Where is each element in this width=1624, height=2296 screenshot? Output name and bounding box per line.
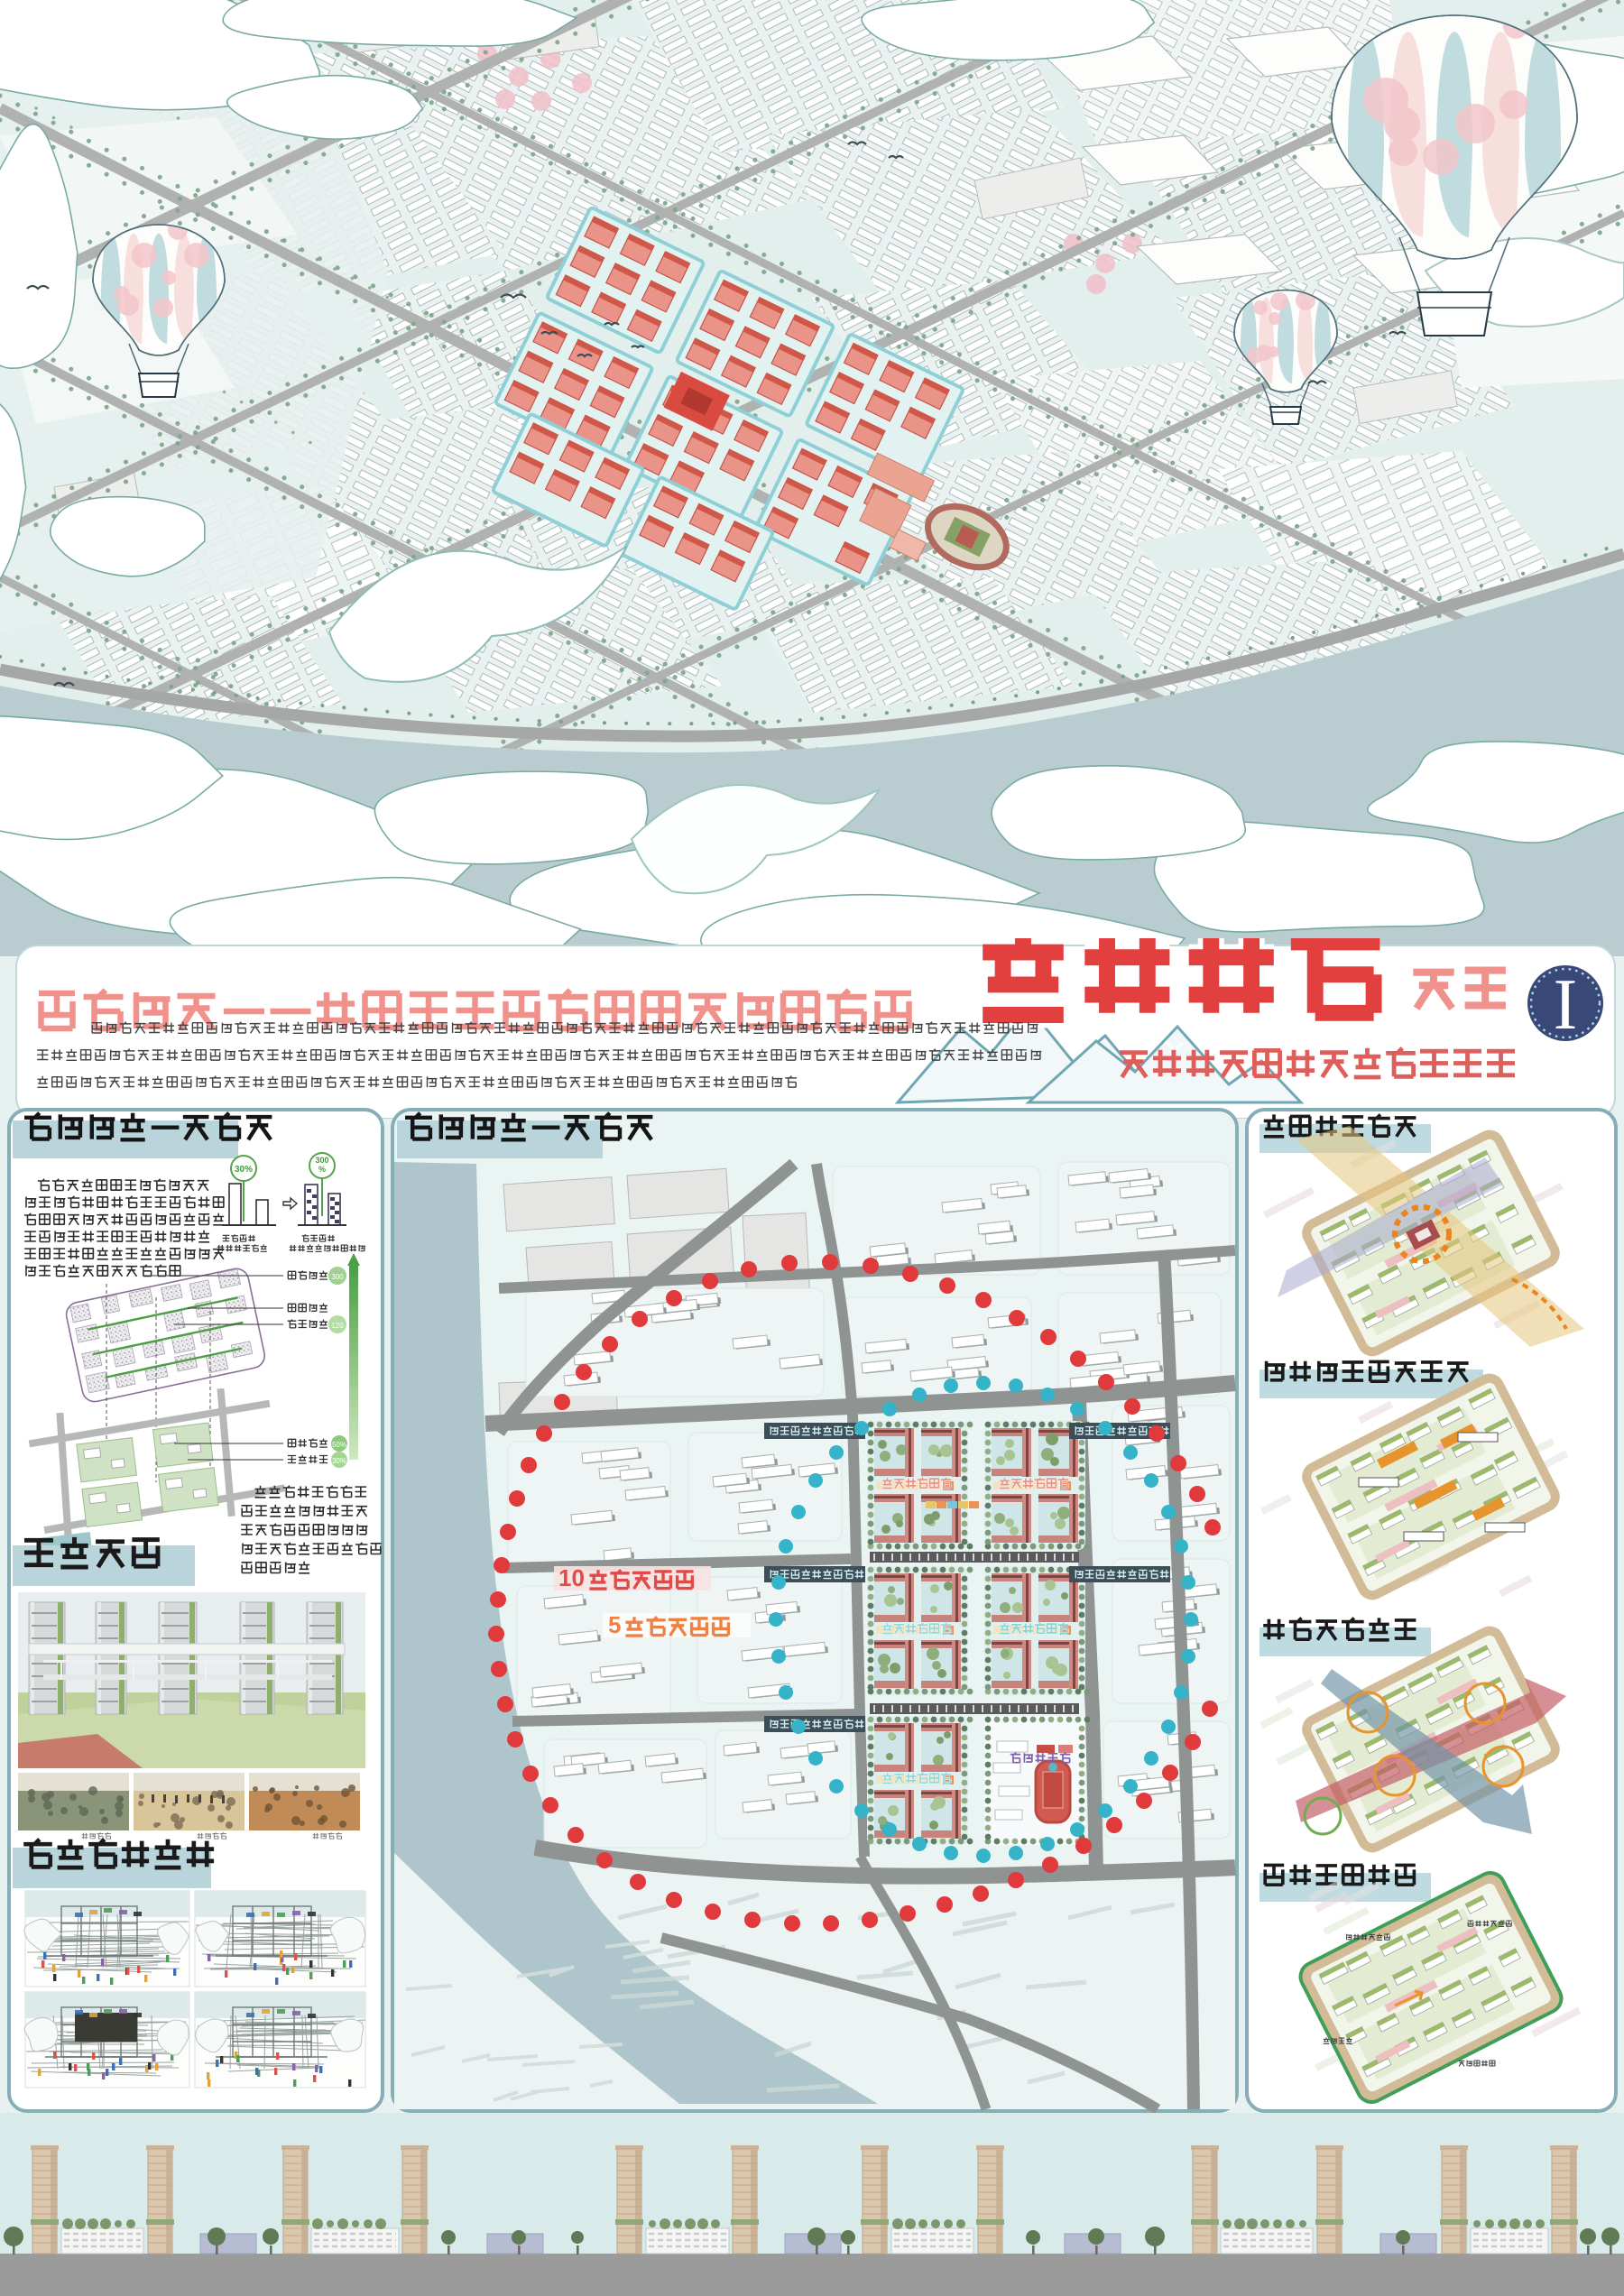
svg-text:5: 5 [608, 1611, 621, 1638]
svg-text:50%: 50% [332, 1441, 346, 1449]
svg-text:I: I [1554, 965, 1578, 1045]
svg-text:300: 300 [331, 1273, 344, 1281]
svg-text:120: 120 [331, 1322, 344, 1330]
svg-text:30%: 30% [332, 1457, 346, 1465]
svg-text:30%: 30% [235, 1165, 253, 1175]
svg-text:300: 300 [315, 1156, 328, 1165]
svg-text:%: % [318, 1165, 326, 1174]
svg-text:10: 10 [558, 1564, 585, 1591]
